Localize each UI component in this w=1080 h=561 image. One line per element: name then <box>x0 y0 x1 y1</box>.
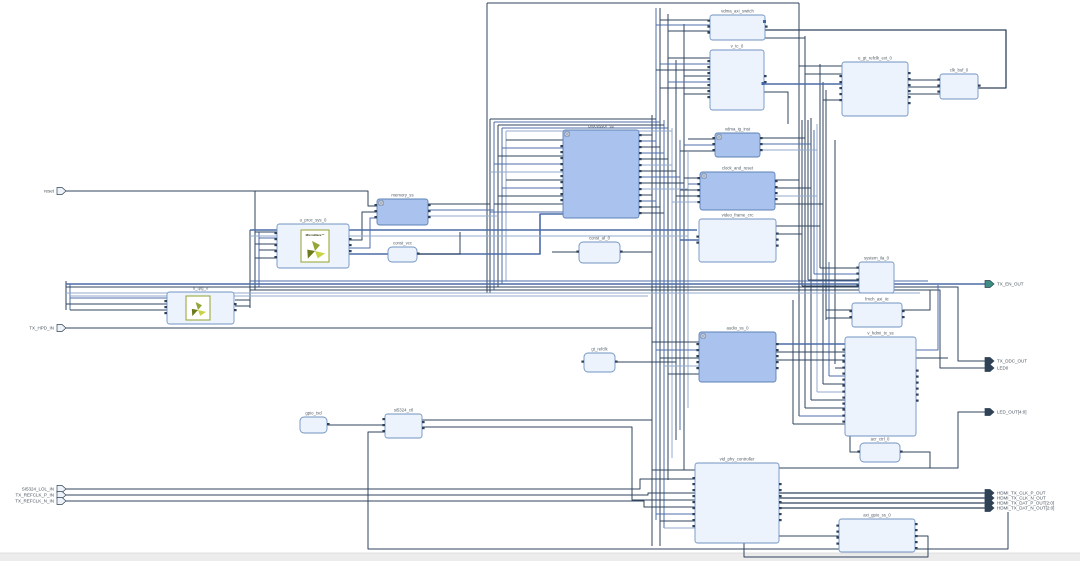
pin[interactable] <box>908 96 911 98</box>
block-label: const_vcc <box>393 241 413 246</box>
pin[interactable] <box>842 409 845 411</box>
pin[interactable] <box>915 523 918 525</box>
pin[interactable] <box>274 244 277 246</box>
pin[interactable] <box>697 177 700 179</box>
block-label: const_af_0 <box>589 236 611 241</box>
pin[interactable] <box>274 238 277 240</box>
pin[interactable] <box>560 145 563 147</box>
pin[interactable] <box>581 361 584 363</box>
block-body[interactable] <box>695 463 779 543</box>
block-body[interactable] <box>710 15 765 40</box>
pin[interactable] <box>908 84 911 86</box>
pin[interactable] <box>697 195 700 197</box>
pin[interactable] <box>697 189 700 191</box>
pin[interactable] <box>692 513 695 515</box>
pin[interactable] <box>836 525 839 527</box>
block-body[interactable] <box>859 262 894 293</box>
block-u_proc_sys_0[interactable]: u_proc_sys_0MicroBlaze™ <box>274 218 351 269</box>
pin[interactable] <box>274 250 277 252</box>
block-diagram-canvas[interactable]: vdma_axi_switchv_tc_0u_gt_refclk_ext_0cl… <box>0 0 1080 561</box>
block-label: clk_buf_0 <box>950 68 969 73</box>
pin[interactable] <box>779 513 782 515</box>
pin[interactable] <box>164 306 167 308</box>
port-label: reset <box>44 189 55 194</box>
pin[interactable] <box>382 430 385 432</box>
pin[interactable] <box>842 373 845 375</box>
output-port[interactable]: LED0 <box>985 365 1009 372</box>
pin[interactable] <box>560 199 563 201</box>
pin[interactable] <box>836 543 839 545</box>
pin[interactable] <box>856 267 859 269</box>
pin[interactable] <box>760 137 763 139</box>
block-processor_ss[interactable]: processor_ss <box>560 124 641 219</box>
block-body[interactable] <box>940 74 978 99</box>
block-label: acr_ctrl_0 <box>871 437 890 442</box>
pin[interactable] <box>779 519 782 521</box>
output-port[interactable]: TX_EN_OUT <box>985 281 1024 288</box>
pin[interactable] <box>696 349 699 351</box>
pin[interactable] <box>349 244 352 246</box>
pin[interactable] <box>274 232 277 234</box>
pin[interactable] <box>900 451 903 453</box>
pin[interactable] <box>707 72 710 74</box>
pin[interactable] <box>842 349 845 351</box>
pin[interactable] <box>234 309 237 311</box>
block-label: audio_ss_0 <box>727 326 750 331</box>
pin[interactable] <box>327 423 330 425</box>
pin[interactable] <box>712 137 715 139</box>
block-label: gpio_txd <box>305 411 322 416</box>
pin[interactable] <box>915 541 918 543</box>
block-label: u_proc_sys_0 <box>300 218 327 223</box>
pin[interactable] <box>776 245 779 247</box>
pin[interactable] <box>842 403 845 405</box>
pin[interactable] <box>836 531 839 533</box>
block-label: video_frame_crc <box>722 213 755 218</box>
port-label: SI5324_LOL_IN <box>22 487 54 492</box>
pin[interactable] <box>916 394 919 396</box>
pin[interactable] <box>422 421 425 423</box>
pin[interactable] <box>707 78 710 80</box>
pin[interactable] <box>639 158 642 160</box>
pin[interactable] <box>707 32 710 34</box>
pin[interactable] <box>916 370 919 372</box>
port-label: TX_REFCLK_N_IN <box>15 499 54 504</box>
pin[interactable] <box>164 300 167 302</box>
port-label: HDMI_TX_DAT_N_OUT[2:0] <box>997 506 1054 511</box>
pin[interactable] <box>620 251 623 253</box>
pin[interactable] <box>560 187 563 189</box>
block-body[interactable] <box>563 130 639 218</box>
block-label: clock_and_reset <box>722 166 754 171</box>
pin[interactable] <box>560 151 563 153</box>
pin[interactable] <box>707 20 710 22</box>
pin[interactable] <box>776 355 779 357</box>
block-video_frame_crc[interactable]: video_frame_crc <box>696 213 778 263</box>
pin[interactable] <box>576 251 579 253</box>
pin[interactable] <box>856 285 859 287</box>
pin[interactable] <box>697 183 700 185</box>
block-body[interactable] <box>710 50 764 110</box>
pin[interactable] <box>639 212 642 214</box>
diagram-svg: vdma_axi_switchv_tc_0u_gt_refclk_ext_0cl… <box>0 0 1080 561</box>
output-port[interactable]: LED_OUT[4:0] <box>985 409 1027 416</box>
pin[interactable] <box>696 343 699 345</box>
pin[interactable] <box>937 91 940 93</box>
block-label: vdma_ig_inst <box>725 127 751 132</box>
pin[interactable] <box>692 501 695 503</box>
port-label: LED0 <box>997 366 1009 371</box>
pin[interactable] <box>916 388 919 390</box>
block-v_hdmi_tx_ss[interactable]: v_hdmi_tx_ss <box>842 331 918 437</box>
block-body[interactable] <box>584 353 615 372</box>
pin[interactable] <box>639 206 642 208</box>
pin[interactable] <box>707 26 710 28</box>
pin[interactable] <box>692 483 695 485</box>
block-label: fmch_axi_iic <box>865 297 889 302</box>
pin[interactable] <box>428 204 431 206</box>
block-label: u_tpg_0 <box>193 286 209 291</box>
block-label: memory_ss <box>391 193 413 198</box>
pin[interactable] <box>779 483 782 485</box>
block-body[interactable] <box>700 172 775 210</box>
pin[interactable] <box>639 146 642 148</box>
block-label: v_hdmi_tx_ss <box>867 331 893 336</box>
block-label: vid_phy_controller <box>720 457 755 462</box>
pin[interactable] <box>639 176 642 178</box>
pin[interactable] <box>902 316 905 318</box>
pin[interactable] <box>776 367 779 369</box>
pin[interactable] <box>692 489 695 491</box>
pin[interactable] <box>707 96 710 98</box>
pin[interactable] <box>428 210 431 212</box>
interface-pin[interactable] <box>763 20 766 23</box>
pin[interactable] <box>842 361 845 363</box>
pin[interactable] <box>349 238 352 240</box>
pin[interactable] <box>707 90 710 92</box>
pin[interactable] <box>422 427 425 429</box>
block-label: vdma_axi_switch <box>721 9 754 14</box>
block-body[interactable] <box>300 417 327 433</box>
input-port[interactable]: TX_HPD_IN <box>29 325 66 332</box>
pin[interactable] <box>842 367 845 369</box>
pin[interactable] <box>712 143 715 145</box>
port-label: TX_REFCLK_P_IN <box>15 493 54 498</box>
output-port[interactable]: TX_DDC_OUT <box>985 358 1027 365</box>
pin[interactable] <box>692 507 695 509</box>
pin[interactable] <box>615 361 618 363</box>
block-body[interactable] <box>852 303 902 327</box>
pin[interactable] <box>839 81 842 83</box>
pin[interactable] <box>908 72 911 74</box>
block-vid_phy_controller[interactable]: vid_phy_controller <box>692 457 781 544</box>
pin[interactable] <box>978 85 981 87</box>
pin[interactable] <box>692 477 695 479</box>
pin[interactable] <box>937 85 940 87</box>
pin[interactable] <box>382 418 385 420</box>
pin[interactable] <box>707 66 710 68</box>
pin[interactable] <box>915 529 918 531</box>
pin[interactable] <box>775 192 778 194</box>
pin[interactable] <box>639 170 642 172</box>
pin[interactable] <box>274 256 277 258</box>
pin[interactable] <box>560 163 563 165</box>
port-label: TX_HPD_IN <box>29 326 54 331</box>
pin[interactable] <box>915 547 918 549</box>
port-label: LED_OUT[4:0] <box>997 410 1027 415</box>
pin[interactable] <box>164 312 167 314</box>
pin[interactable] <box>779 507 782 509</box>
pin[interactable] <box>692 525 695 527</box>
block-body[interactable] <box>839 519 915 552</box>
pin[interactable] <box>839 99 842 101</box>
pin[interactable] <box>639 182 642 184</box>
pin[interactable] <box>839 75 842 77</box>
pin[interactable] <box>776 343 779 345</box>
block-label: gt_refclk <box>591 347 608 352</box>
pin[interactable] <box>639 194 642 196</box>
pin[interactable] <box>707 60 710 62</box>
pin[interactable] <box>639 134 642 136</box>
pin[interactable] <box>639 164 642 166</box>
block-body[interactable] <box>845 337 916 436</box>
block-label: si5324_ctl <box>394 408 413 413</box>
block-body[interactable] <box>860 443 900 462</box>
port-label: TX_EN_OUT <box>997 282 1024 287</box>
pin[interactable] <box>836 537 839 539</box>
pin[interactable] <box>374 216 377 218</box>
pin[interactable] <box>775 198 778 200</box>
pin[interactable] <box>856 279 859 281</box>
pin[interactable] <box>760 143 763 145</box>
block-u_gt_refclk_ext_0[interactable]: u_gt_refclk_ext_0 <box>839 56 910 117</box>
pin[interactable] <box>712 149 715 151</box>
pin[interactable] <box>842 397 845 399</box>
pin[interactable] <box>856 273 859 275</box>
pin[interactable] <box>639 152 642 154</box>
block-body[interactable] <box>715 133 760 157</box>
pin[interactable] <box>696 236 699 238</box>
block-body[interactable] <box>842 62 908 116</box>
block-label: u_gt_refclk_ext_0 <box>858 56 893 61</box>
pin[interactable] <box>707 84 710 86</box>
pin[interactable] <box>374 204 377 206</box>
pin[interactable] <box>764 75 767 77</box>
pin[interactable] <box>842 385 845 387</box>
block-audio_ss_0[interactable]: audio_ss_0 <box>696 326 778 383</box>
block-body[interactable] <box>699 332 776 382</box>
block-label: processor_ss <box>588 124 614 129</box>
pin[interactable] <box>560 175 563 177</box>
pin[interactable] <box>916 382 919 384</box>
block-body[interactable] <box>579 242 620 263</box>
pin[interactable] <box>775 186 778 188</box>
pin[interactable] <box>937 79 940 81</box>
pin[interactable] <box>696 242 699 244</box>
pin[interactable] <box>382 424 385 426</box>
pin[interactable] <box>908 102 911 104</box>
pin[interactable] <box>779 501 782 503</box>
pin[interactable] <box>842 391 845 393</box>
pin[interactable] <box>692 495 695 497</box>
block-clock_and_reset[interactable]: clock_and_reset <box>697 166 777 211</box>
block-label: system_ila_0 <box>864 256 890 261</box>
pin[interactable] <box>775 180 778 182</box>
pin[interactable] <box>374 210 377 212</box>
pin[interactable] <box>849 316 852 318</box>
pin[interactable] <box>639 188 642 190</box>
pin[interactable] <box>349 250 352 252</box>
pin[interactable] <box>776 239 779 241</box>
block-body[interactable] <box>699 219 776 262</box>
pin[interactable] <box>857 451 860 453</box>
pin[interactable] <box>776 361 779 363</box>
pin[interactable] <box>842 421 845 423</box>
pin[interactable] <box>560 169 563 171</box>
pin[interactable] <box>417 253 420 255</box>
pin[interactable] <box>560 193 563 195</box>
pin[interactable] <box>902 310 905 312</box>
pin[interactable] <box>839 87 842 89</box>
block-label: v_tc_0 <box>731 44 744 49</box>
pin[interactable] <box>696 355 699 357</box>
pin[interactable] <box>639 140 642 142</box>
pin[interactable] <box>760 149 763 151</box>
pin[interactable] <box>779 495 782 497</box>
pin[interactable] <box>849 310 852 312</box>
pin[interactable] <box>908 90 911 92</box>
pin[interactable] <box>697 201 700 203</box>
pin[interactable] <box>842 379 845 381</box>
interface-pin[interactable] <box>762 82 765 85</box>
pin[interactable] <box>915 535 918 537</box>
pin[interactable] <box>234 303 237 305</box>
pin[interactable] <box>560 157 563 159</box>
block-body[interactable] <box>385 414 422 438</box>
pin[interactable] <box>842 415 845 417</box>
pin[interactable] <box>696 367 699 369</box>
pin[interactable] <box>776 349 779 351</box>
port-label: TX_DDC_OUT <box>997 359 1027 364</box>
pin[interactable] <box>560 181 563 183</box>
pin[interactable] <box>696 361 699 363</box>
pin[interactable] <box>908 78 911 80</box>
pin[interactable] <box>639 200 642 202</box>
input-port[interactable]: TX_REFCLK_N_IN <box>15 498 66 505</box>
block-body[interactable] <box>377 199 428 225</box>
pin[interactable] <box>428 216 431 218</box>
pin[interactable] <box>916 400 919 402</box>
pin[interactable] <box>779 489 782 491</box>
pin[interactable] <box>692 519 695 521</box>
pin[interactable] <box>776 233 779 235</box>
block-v_tc_0[interactable]: v_tc_0 <box>707 44 766 111</box>
block-label: axi_gpio_ss_0 <box>863 513 891 518</box>
microblaze-logo-text: MicroBlaze™ <box>306 233 325 237</box>
pin[interactable] <box>765 26 768 28</box>
pin[interactable] <box>916 376 919 378</box>
block-body[interactable] <box>388 247 417 262</box>
pin[interactable] <box>842 355 845 357</box>
pin[interactable] <box>839 93 842 95</box>
